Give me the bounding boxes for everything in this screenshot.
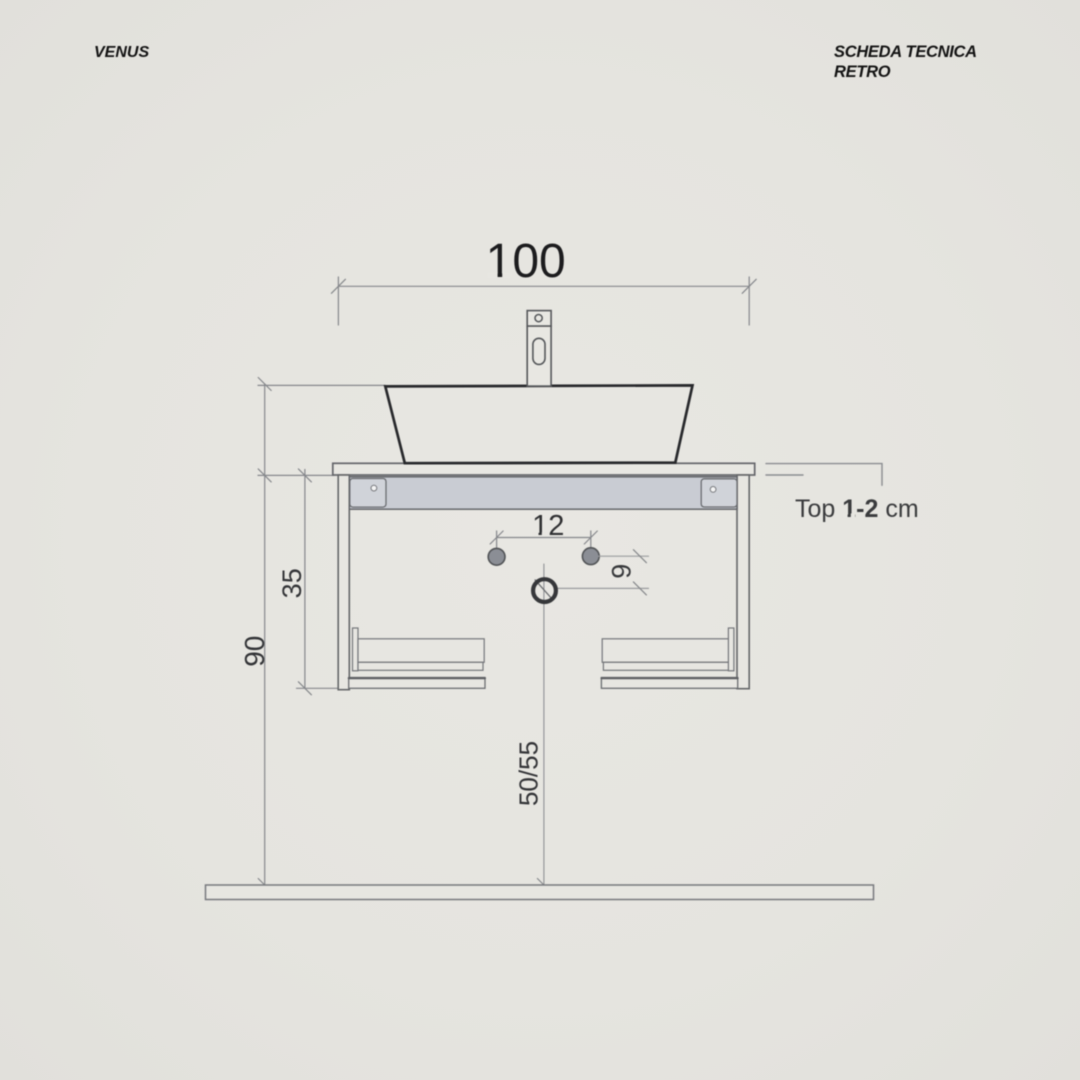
svg-text:90: 90 (239, 636, 270, 667)
svg-text:100: 100 (486, 235, 566, 288)
svg-text:50/55: 50/55 (514, 741, 544, 806)
svg-text:Top 1-2 cm: Top 1-2 cm (795, 495, 919, 523)
svg-text:35: 35 (277, 568, 307, 598)
svg-text:12: 12 (532, 510, 564, 542)
svg-text:9: 9 (607, 564, 637, 579)
